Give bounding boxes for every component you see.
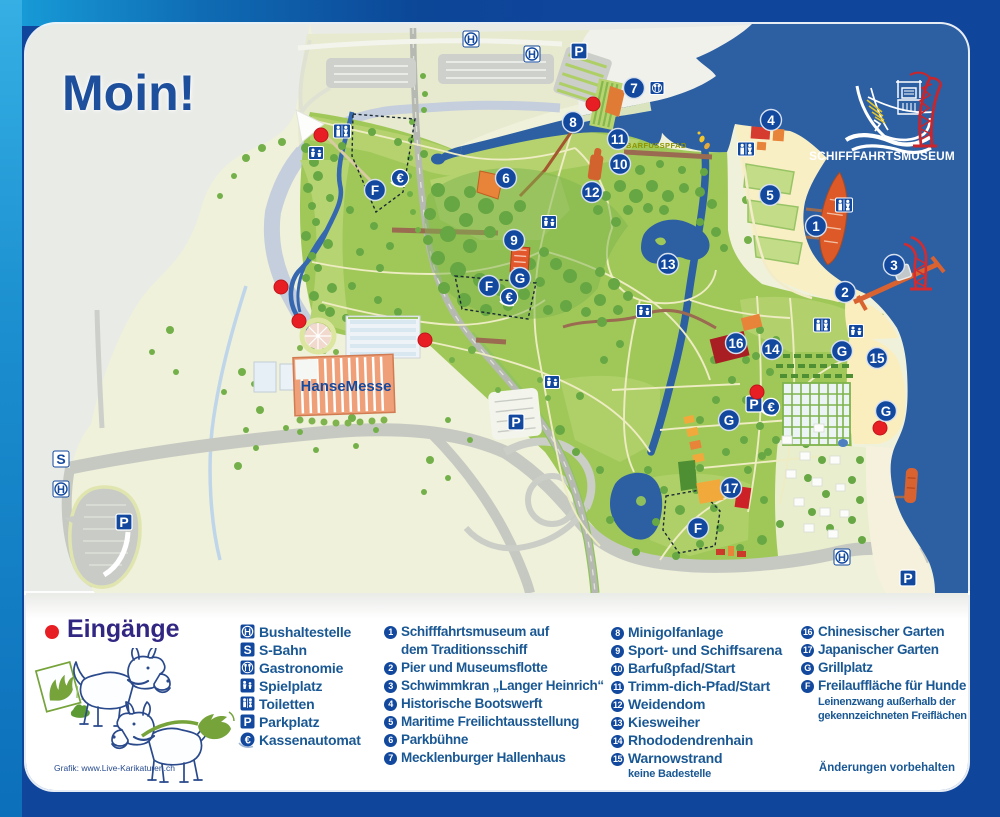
svg-text:BARFUSSPFAD: BARFUSSPFAD (626, 141, 687, 150)
svg-text:6: 6 (502, 171, 510, 186)
svg-text:H: H (244, 627, 251, 638)
svg-text:10: 10 (612, 157, 627, 172)
svg-text:F: F (694, 521, 702, 536)
svg-text:5: 5 (766, 188, 774, 203)
svg-text:8: 8 (569, 115, 577, 130)
svg-text:G: G (837, 344, 848, 359)
svg-text:13: 13 (660, 257, 676, 272)
svg-text:G: G (515, 271, 526, 286)
svg-text:G: G (881, 404, 892, 419)
svg-text:16: 16 (728, 336, 744, 351)
svg-text:S: S (244, 643, 252, 657)
svg-text:HanseMesse: HanseMesse (301, 378, 392, 395)
svg-text:3: 3 (890, 258, 898, 273)
svg-text:4: 4 (767, 113, 775, 128)
svg-text:2: 2 (841, 285, 849, 300)
svg-text:7: 7 (630, 81, 638, 96)
svg-text:G: G (724, 413, 735, 428)
svg-text:F: F (485, 279, 493, 294)
svg-text:P: P (244, 715, 252, 729)
svg-text:17: 17 (723, 481, 738, 496)
svg-text:14: 14 (764, 342, 780, 357)
svg-text:9: 9 (510, 233, 518, 248)
svg-text:1: 1 (812, 219, 820, 234)
svg-text:12: 12 (584, 185, 599, 200)
svg-text:€: € (245, 735, 251, 747)
svg-text:F: F (371, 183, 379, 198)
svg-text:SCHIFFFAHRTSMUSEUM: SCHIFFFAHRTSMUSEUM (809, 149, 955, 163)
svg-text:11: 11 (611, 132, 626, 147)
svg-text:15: 15 (869, 351, 885, 366)
